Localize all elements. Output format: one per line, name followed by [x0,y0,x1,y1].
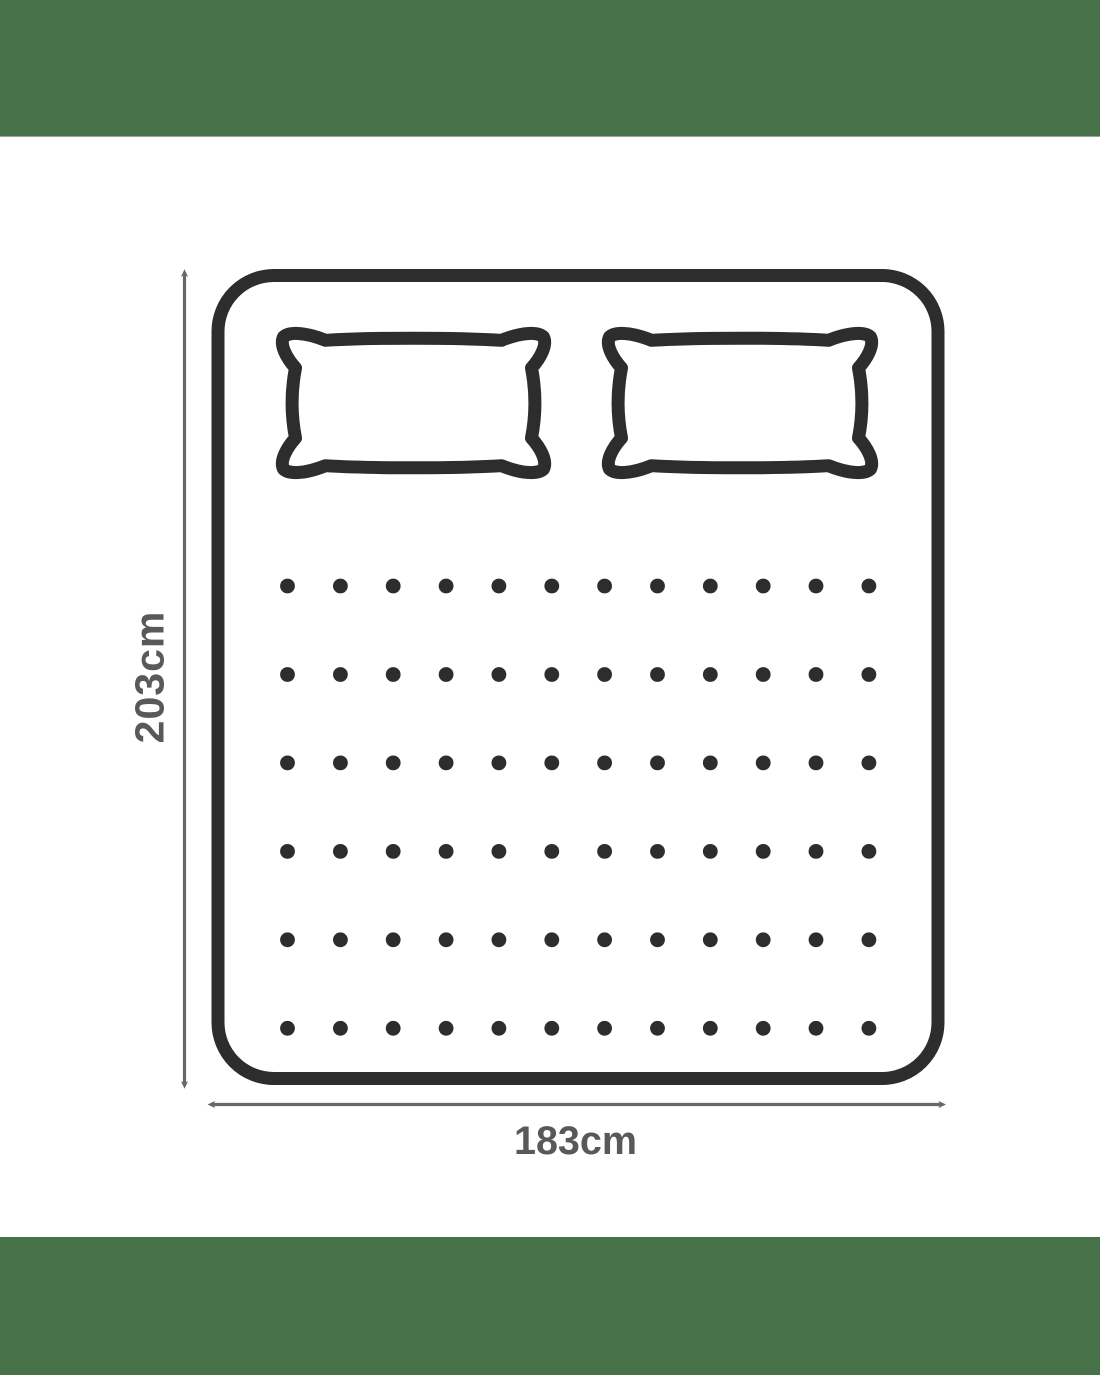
svg-text:203cm: 203cm [127,611,173,744]
svg-text:183cm: 183cm [514,1119,637,1163]
